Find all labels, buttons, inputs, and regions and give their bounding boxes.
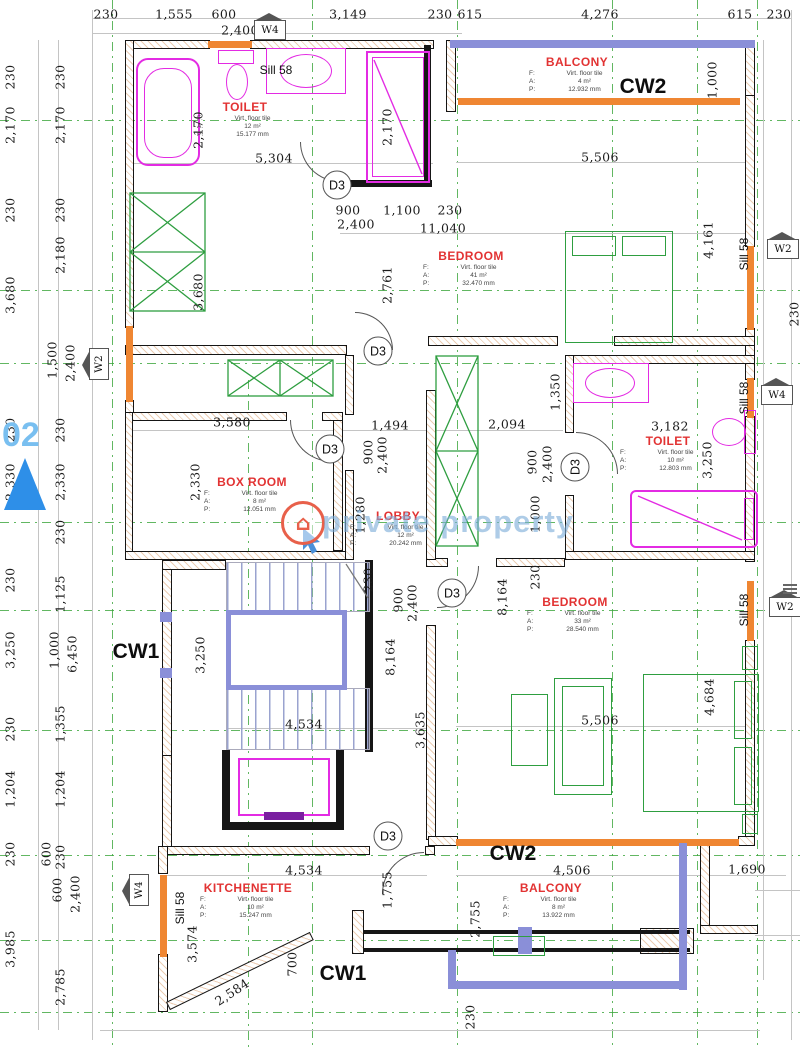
- wall-segment: [446, 40, 456, 112]
- menu-icon[interactable]: [783, 582, 797, 596]
- dimension-label: 1,000: [47, 631, 62, 669]
- wall-segment: [158, 846, 370, 855]
- dimension-label: 230: [3, 716, 18, 741]
- dimension-label: 600: [39, 841, 54, 866]
- room-label-bedroom: BEDROOMF:Virt. floor tileA:33 m²P:28.540…: [527, 595, 623, 633]
- dimension-label: 5,304: [255, 151, 293, 166]
- wall-segment: [125, 40, 134, 328]
- window-w4: [160, 875, 167, 957]
- room-name: TOILET: [620, 434, 716, 448]
- dimension-label: 3,574: [185, 925, 200, 963]
- wall-segment: [428, 836, 458, 846]
- dimension-label: 2,330: [53, 463, 68, 501]
- dimension-label: 3,250: [3, 631, 18, 669]
- dimension-label: 900: [391, 587, 406, 612]
- watermark-house-icon: ⌂: [281, 501, 325, 545]
- pillow: [734, 747, 752, 805]
- balcony-rail: [448, 981, 686, 989]
- dimension-label: 2,170: [3, 106, 18, 144]
- wall-segment: [700, 845, 710, 933]
- dimension-label: 2,094: [488, 417, 526, 432]
- step: [493, 936, 545, 956]
- dimension-label: 4,534: [285, 717, 323, 732]
- dimension-label: 615: [457, 7, 482, 22]
- door-label: D3: [316, 435, 345, 464]
- toilet-tank: [218, 50, 254, 64]
- dimension-label: 1,100: [383, 203, 421, 218]
- dimension-label: 230: [463, 1004, 478, 1029]
- dimension-label: 2,755: [468, 900, 483, 938]
- wall-segment: [352, 910, 364, 954]
- dimension-label: 6,450: [65, 635, 80, 673]
- room-label-kitchenette: KITCHENETTEF:Virt. floor tileA:10 m²P:15…: [200, 881, 296, 919]
- dimension-label: 3,149: [329, 7, 367, 22]
- room-name: TOILET: [197, 100, 293, 114]
- dimension-label: 2,400: [63, 344, 78, 382]
- dimension-label: 4,161: [701, 221, 716, 259]
- construction-line: [100, 1030, 760, 1031]
- door-label: D3: [364, 337, 393, 366]
- elevator-shaft-wall: [336, 750, 344, 830]
- dimension-label: 230: [53, 197, 68, 222]
- watermark-text: private property: [322, 504, 574, 540]
- room-label-toilet: TOILETF:Virt. floor tileA:12 m²P:15.177 …: [197, 100, 293, 138]
- sofa-seat: [562, 686, 604, 786]
- door-label: D3: [438, 579, 467, 608]
- dimension-label: 230: [53, 519, 68, 544]
- dimension-label: 3,580: [213, 415, 251, 430]
- grid-line: [112, 0, 113, 1049]
- wall-segment: [745, 95, 755, 247]
- room-name: BOX ROOM: [204, 475, 300, 489]
- window-tag-w4: W4: [254, 20, 286, 40]
- balcony-rail: [448, 950, 456, 988]
- wall-segment: [162, 560, 226, 570]
- level-marker-triangle: [4, 458, 46, 510]
- dimension-label: 1,690: [728, 862, 766, 877]
- dimension-label: 600: [211, 7, 236, 22]
- sill-label: Sill 58: [173, 892, 187, 925]
- sill-label: Sill 58: [260, 63, 293, 77]
- dimension-label: 1,350: [548, 373, 563, 411]
- wall-segment: [565, 551, 755, 560]
- room-name: KITCHENETTE: [200, 881, 296, 895]
- toilet-bowl: [226, 64, 248, 100]
- dimension-label: 230: [3, 197, 18, 222]
- bathtub-inner: [144, 68, 192, 158]
- wall-segment: [428, 336, 558, 346]
- label-cw2: CW2: [490, 842, 537, 866]
- room-name: BALCONY: [529, 55, 625, 69]
- bathtub-controls: [744, 498, 754, 540]
- dimension-label: 230: [93, 7, 118, 22]
- dimension-label: 230: [528, 564, 543, 589]
- dimension-label: 3,182: [651, 419, 689, 434]
- window-cw2: [458, 98, 740, 105]
- window-w4: [208, 41, 252, 48]
- dimension-label: 2,400: [540, 445, 555, 483]
- wall-segment: [700, 925, 758, 934]
- dimension-label: 2,180: [53, 236, 68, 274]
- construction-line: [755, 935, 800, 936]
- dimension-label: 1,125: [53, 575, 68, 613]
- dimension-label: 1,355: [53, 705, 68, 743]
- grid-line: [0, 290, 800, 291]
- door-label: D3: [561, 453, 590, 482]
- dimension-label: 700: [285, 951, 300, 976]
- room-label-bedroom: BEDROOMF:Virt. floor tileA:41 m²P:32.470…: [423, 249, 519, 287]
- door-label: D3: [323, 171, 352, 200]
- room-name: BEDROOM: [423, 249, 519, 263]
- wall-segment: [125, 40, 210, 49]
- dimension-label: 3,680: [3, 276, 18, 314]
- dimension-label: 600: [50, 877, 65, 902]
- sill-label: Sill 58: [737, 238, 751, 271]
- dimension-label: 4,534: [285, 863, 323, 878]
- construction-line: [791, 10, 792, 1040]
- wall-segment: [162, 755, 172, 850]
- label-cw2: CW2: [620, 75, 667, 99]
- window-mark: [160, 612, 172, 622]
- wall-segment: [162, 560, 172, 760]
- dimension-label: 4,506: [553, 863, 591, 878]
- dimension-label: 2,400: [375, 436, 390, 474]
- sill-label: Sill 58: [737, 382, 751, 415]
- level-marker-label: 02: [2, 416, 40, 455]
- door-label: D3: [374, 822, 403, 851]
- dimension-label: 230: [437, 203, 462, 218]
- dimension-line: [340, 233, 755, 234]
- window-tag-w2: W2: [767, 239, 799, 259]
- dimension-label: 1,500: [45, 341, 60, 379]
- elevator-shaft-wall: [222, 750, 230, 830]
- nightstand: [742, 814, 758, 834]
- dimension-label: 2,170: [380, 108, 395, 146]
- window-mark: [160, 668, 172, 678]
- nightstand: [742, 646, 758, 670]
- dimension-label: 900: [525, 449, 540, 474]
- stair-flight: [226, 562, 370, 612]
- pillow: [622, 236, 666, 256]
- room-label-toilet: TOILETF:Virt. floor tileA:10 m²P:12.803 …: [620, 434, 716, 472]
- dimension-label: 5,506: [581, 150, 619, 165]
- window-tag-w4: W4: [129, 874, 149, 906]
- room-name: BALCONY: [503, 881, 599, 895]
- dimension-label: 11,040: [420, 221, 466, 236]
- grid-line: [0, 1012, 800, 1013]
- dimension-label: 1,494: [371, 418, 409, 433]
- dimension-label: 230: [3, 64, 18, 89]
- dimension-label: 1,555: [155, 7, 193, 22]
- dimension-label: 2,400: [337, 217, 375, 232]
- room-name: BEDROOM: [527, 595, 623, 609]
- dimension-label: 2,400: [405, 584, 420, 622]
- pillow: [734, 681, 752, 739]
- dimension-label: 230: [427, 7, 452, 22]
- wall-segment: [345, 355, 354, 415]
- wall-segment: [125, 412, 287, 421]
- window-tag-w4: W4: [761, 385, 793, 405]
- dimension-label: 5,506: [581, 713, 619, 728]
- dimension-label: 3,250: [193, 636, 208, 674]
- label-cw1: CW1: [113, 640, 160, 664]
- wall-segment: [125, 412, 133, 560]
- construction-line: [38, 40, 39, 1030]
- dimension-label: 900: [335, 203, 360, 218]
- bathtub: [630, 490, 758, 548]
- wall-segment: [158, 846, 168, 874]
- dimension-label: 2,400: [68, 875, 83, 913]
- construction-line: [763, 40, 764, 980]
- room-label-box-room: BOX ROOMF:Virt. floor tileA:8 m²P:12.051…: [204, 475, 300, 513]
- balcony-rail: [679, 843, 687, 990]
- dimension-label: 8,164: [495, 578, 510, 616]
- window-tag-w2: W2: [769, 597, 800, 617]
- dimension-label: 230: [53, 64, 68, 89]
- dimension-label: 8,164: [383, 638, 398, 676]
- room-label-balcony: BALCONYF:Virt. floor tileA:4 m²P:12.932 …: [529, 55, 625, 93]
- dimension-label: 615: [727, 7, 752, 22]
- sink-basin: [585, 368, 635, 398]
- elevator-door: [264, 812, 304, 820]
- wall-segment: [426, 625, 436, 840]
- coffee-table: [511, 694, 548, 766]
- dimension-label: 230: [3, 841, 18, 866]
- pillow: [572, 236, 616, 256]
- dimension-label: 3,680: [191, 273, 206, 311]
- wall-segment: [125, 551, 347, 560]
- dimension-label: 230: [3, 567, 18, 592]
- wall-segment: [738, 836, 755, 846]
- wall-segment: [125, 345, 347, 355]
- window-w2: [126, 326, 133, 402]
- dimension-label: 900: [361, 439, 376, 464]
- dimension-label: 1,755: [380, 871, 395, 909]
- window-tag-w2: W2: [89, 348, 109, 380]
- dimension-label: 1,000: [705, 61, 720, 99]
- toilet-bowl: [712, 418, 746, 446]
- dimension-label: 1,204: [53, 770, 68, 808]
- wall-segment: [425, 846, 435, 855]
- dimension-label: 230: [787, 301, 800, 326]
- sill-label: Sill 58: [737, 594, 751, 627]
- dimension-label: 2,785: [53, 968, 68, 1006]
- elevator-cab: [238, 758, 330, 816]
- dimension-label: 230: [53, 844, 68, 869]
- construction-line: [92, 10, 93, 1040]
- stair-void: [226, 610, 347, 690]
- dimension-label: 4,684: [702, 678, 717, 716]
- dimension-label: 230: [766, 7, 791, 22]
- dimension-label: 4,276: [581, 7, 619, 22]
- elevator-shaft-wall: [222, 822, 344, 830]
- dimension-label: 2,330: [188, 463, 203, 501]
- floor-plan: 2301,5556002,4003,1492306154,27661523023…: [0, 0, 800, 1049]
- dimension-label: 2,761: [380, 266, 395, 304]
- balcony-rail: [450, 40, 755, 48]
- dimension-label: 3,635: [413, 711, 428, 749]
- dimension-label: 230: [53, 417, 68, 442]
- dimension-label: 2,170: [53, 106, 68, 144]
- dimension-label: 1,204: [3, 770, 18, 808]
- label-cw1: CW1: [320, 962, 367, 986]
- dimension-label: 230: [361, 567, 376, 592]
- dimension-label: 3,985: [3, 930, 18, 968]
- construction-line: [755, 890, 800, 891]
- room-label-balcony: BALCONYF:Virt. floor tileA:8 m²P:13.922 …: [503, 881, 599, 919]
